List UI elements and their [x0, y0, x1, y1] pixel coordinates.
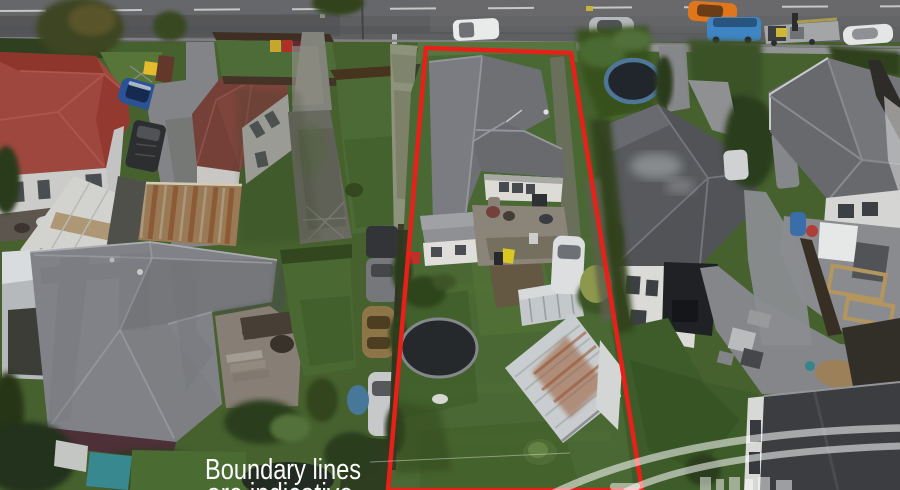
svg-text:are indicative: are indicative [207, 478, 353, 490]
